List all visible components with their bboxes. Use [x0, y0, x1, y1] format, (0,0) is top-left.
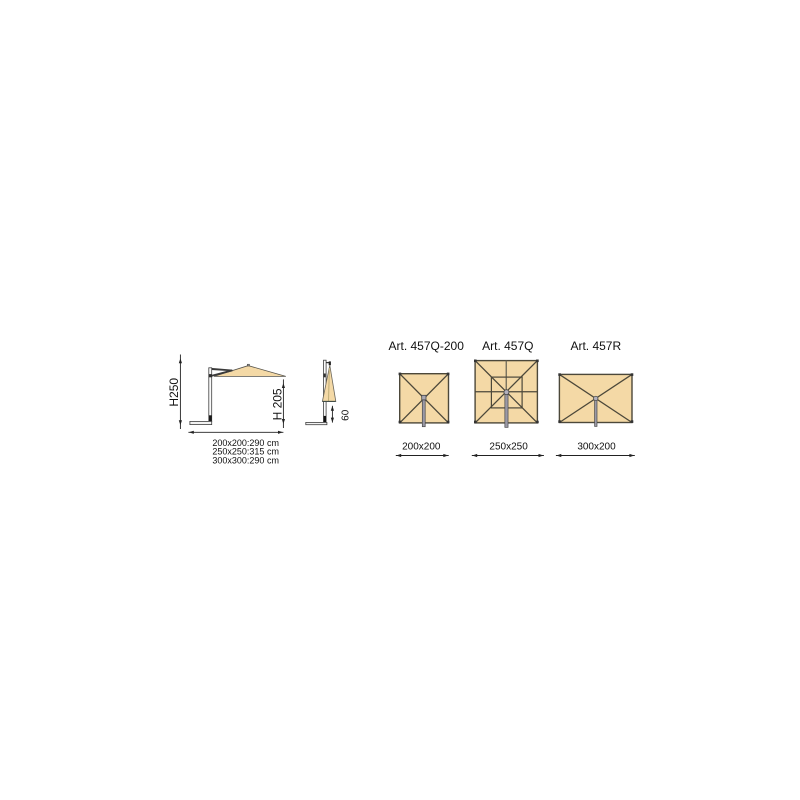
svg-text:300x300:290 cm: 300x300:290 cm	[212, 455, 279, 465]
svg-text:60: 60	[340, 409, 351, 421]
svg-text:H 205: H 205	[271, 388, 285, 420]
svg-text:Art. 457Q-200: Art. 457Q-200	[389, 339, 465, 353]
svg-text:250x250: 250x250	[489, 442, 528, 453]
svg-text:200x200: 200x200	[402, 442, 441, 453]
svg-text:H250: H250	[167, 378, 181, 407]
svg-text:Art. 457R: Art. 457R	[570, 339, 621, 353]
svg-text:Art. 457Q: Art. 457Q	[482, 339, 533, 353]
svg-text:300x200: 300x200	[577, 442, 616, 453]
